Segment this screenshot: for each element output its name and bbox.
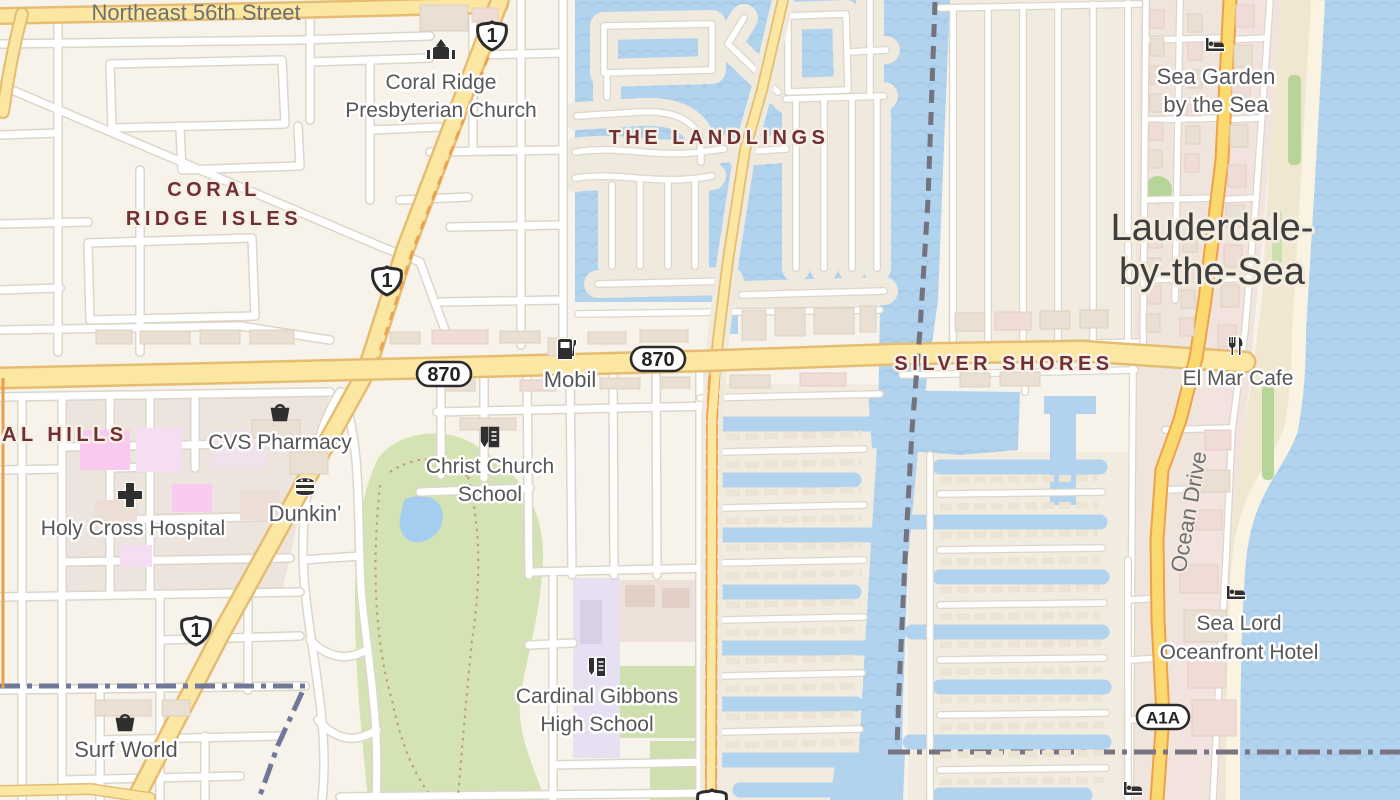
svg-text:Dunkin': Dunkin' [269,501,342,526]
svg-text:Oceanfront Hotel: Oceanfront Hotel [1160,641,1319,664]
svg-text:High School: High School [540,713,653,736]
svg-text:Lauderdale-: Lauderdale- [1111,207,1314,249]
svg-text:SILVER SHORES: SILVER SHORES [894,353,1113,375]
svg-text:Holy Cross Hospital: Holy Cross Hospital [41,517,225,540]
svg-text:Northeast 56th Street: Northeast 56th Street [91,0,300,25]
svg-text:1: 1 [190,620,201,642]
svg-text:AL HILLS: AL HILLS [2,424,128,446]
svg-text:RIDGE ISLES: RIDGE ISLES [126,208,302,230]
svg-text:Mobil: Mobil [544,367,597,392]
svg-text:Surf World: Surf World [74,737,178,762]
svg-text:870: 870 [641,349,674,371]
svg-text:Coral Ridge: Coral Ridge [386,71,497,94]
svg-text:El Mar Cafe: El Mar Cafe [1183,367,1294,390]
svg-text:870: 870 [427,364,460,386]
svg-text:Sea Lord: Sea Lord [1196,612,1281,635]
svg-text:School: School [458,483,522,506]
svg-text:CORAL: CORAL [167,179,261,201]
svg-text:Christ Church: Christ Church [426,455,554,478]
svg-text:Sea Garden: Sea Garden [1157,64,1276,89]
svg-text:by the Sea: by the Sea [1163,92,1269,117]
svg-text:Presbyterian Church: Presbyterian Church [345,99,536,122]
svg-text:1: 1 [486,25,497,47]
svg-text:CVS Pharmacy: CVS Pharmacy [208,431,352,454]
svg-text:Cardinal Gibbons: Cardinal Gibbons [516,685,678,708]
svg-text:THE LANDLINGS: THE LANDLINGS [609,127,830,149]
svg-text:A1A: A1A [1146,709,1180,728]
svg-text:1: 1 [381,270,392,292]
svg-text:by-the-Sea: by-the-Sea [1119,251,1306,293]
